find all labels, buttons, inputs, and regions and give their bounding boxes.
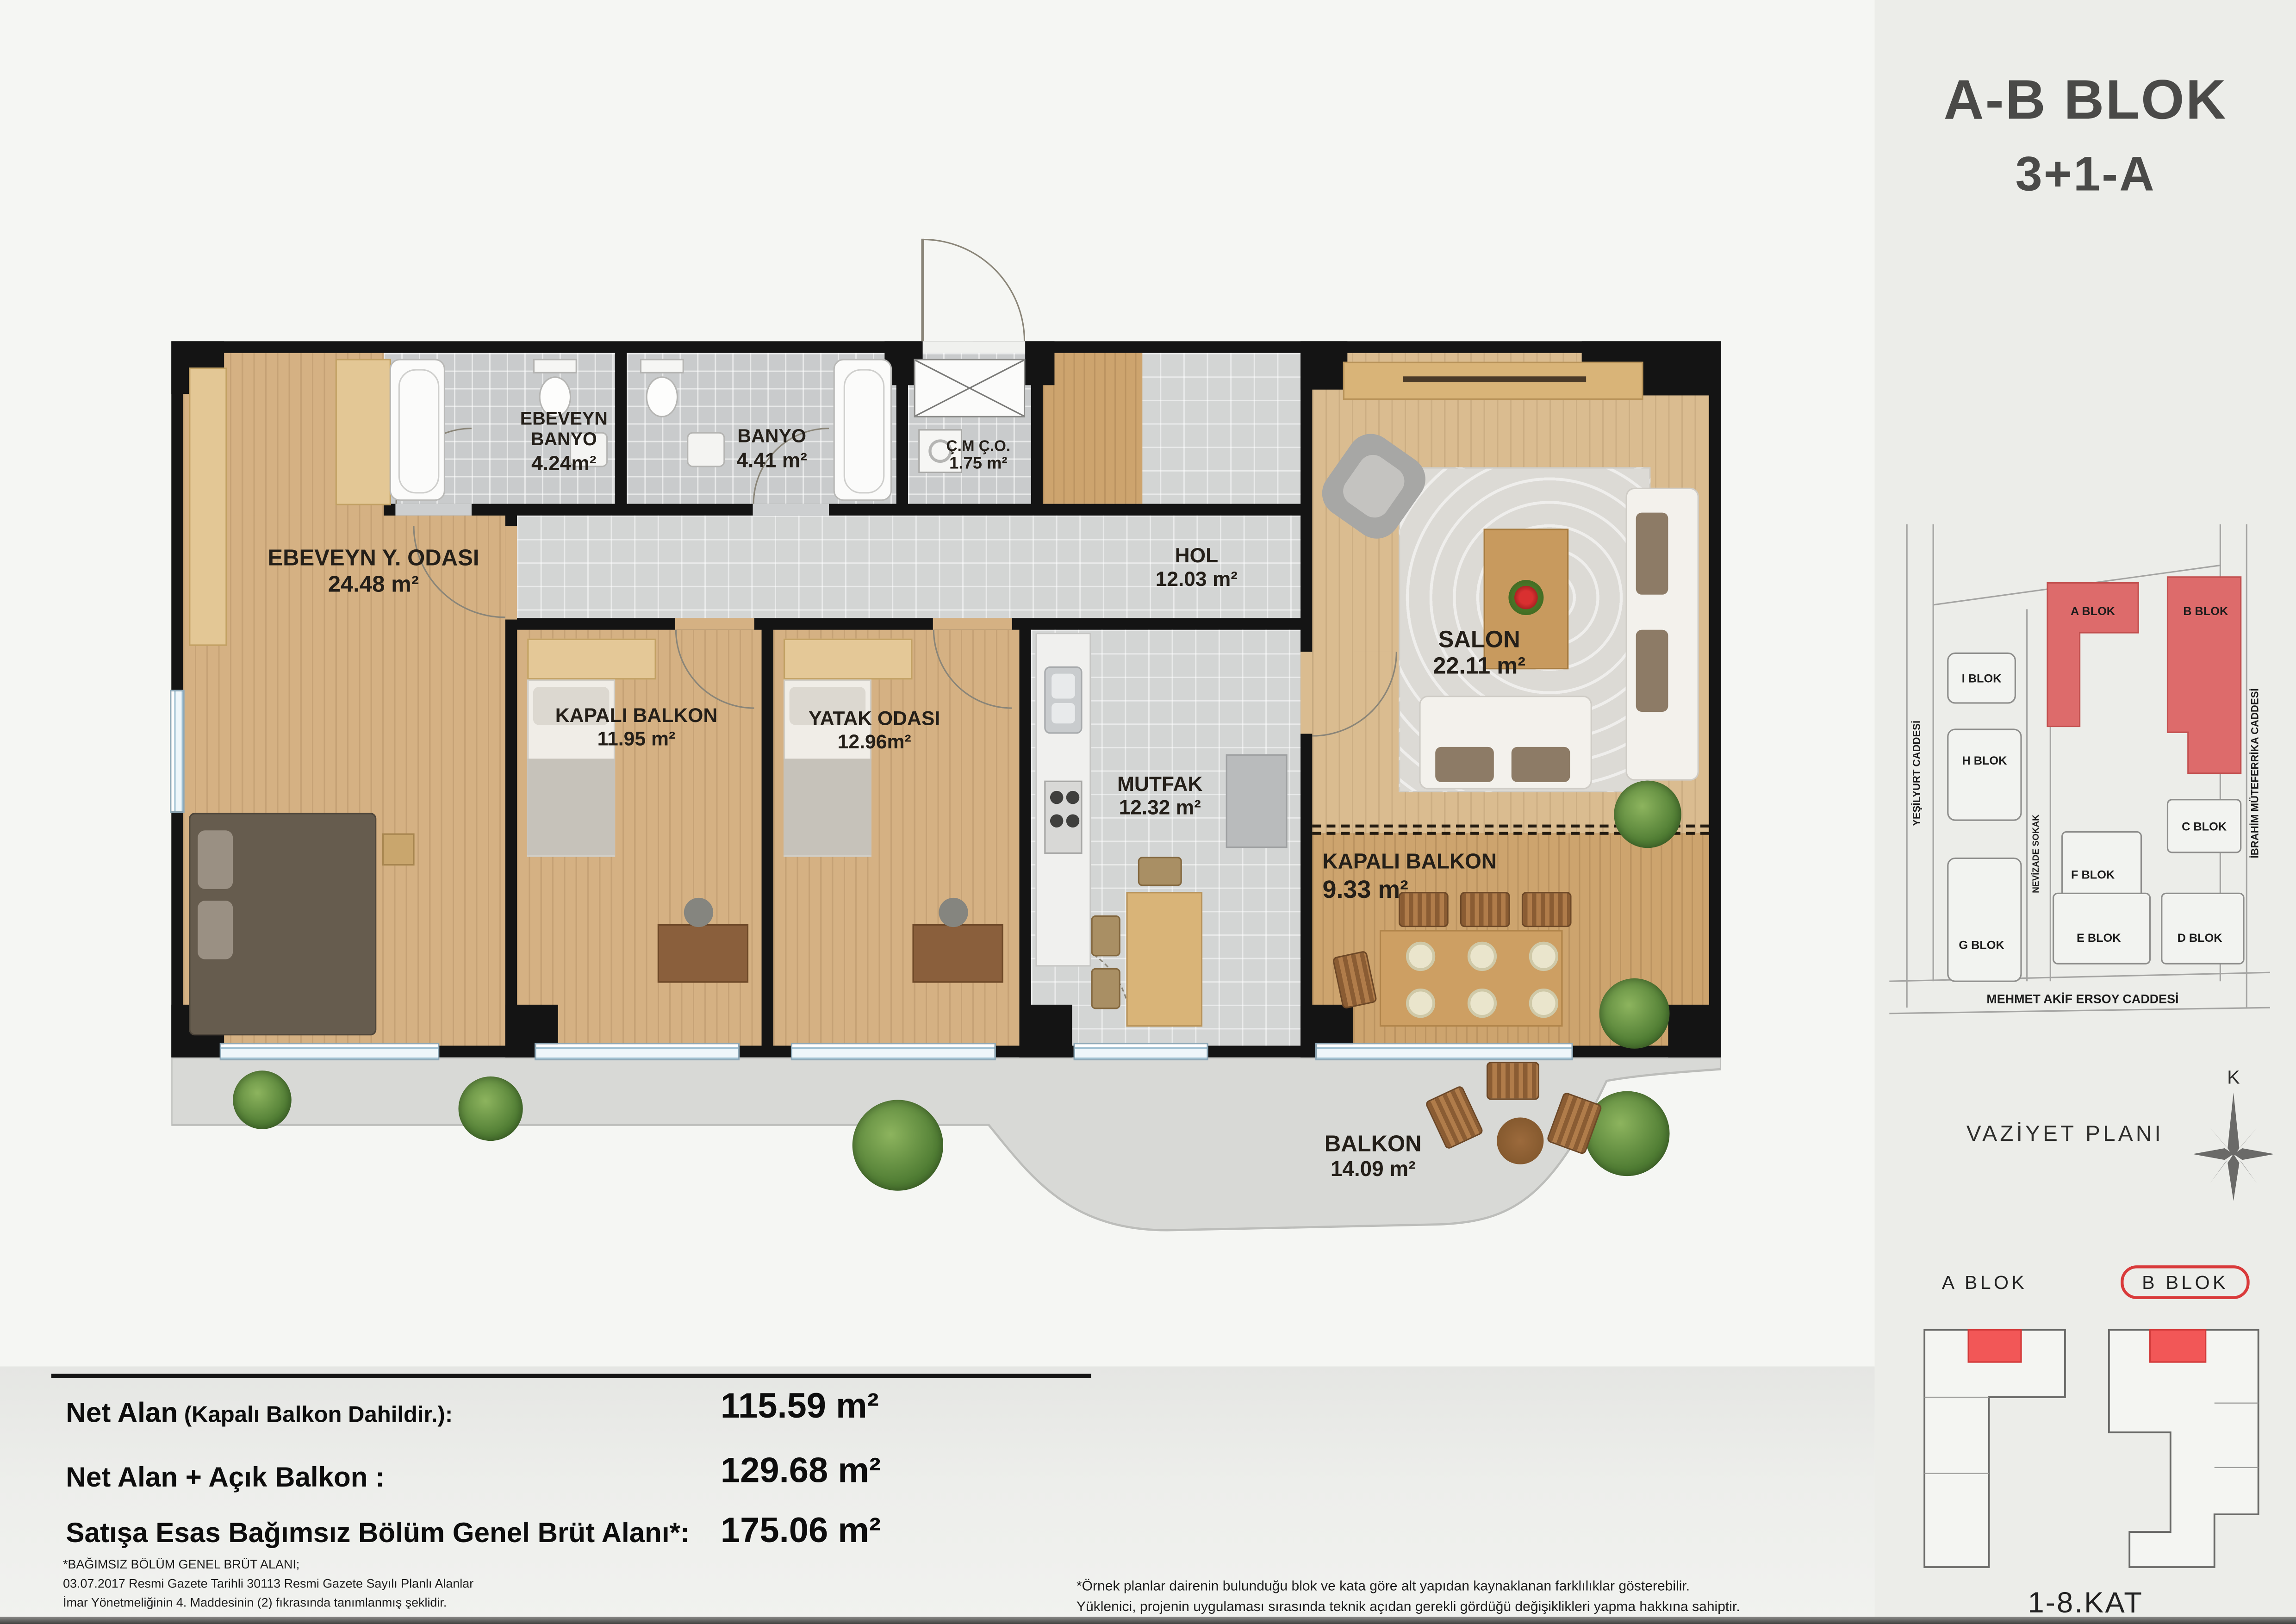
toilet [646, 376, 678, 417]
room-name: EBEVEYN BANYO [498, 409, 630, 451]
wardrobe [189, 367, 227, 646]
key-plan-a-label: A BLOK [1918, 1271, 2050, 1293]
summary-label-text: Net Alan + Açık Balkon : [66, 1463, 385, 1493]
room-area: 11.95 m² [530, 727, 743, 750]
sofa [1626, 488, 1699, 781]
door-gap [395, 504, 472, 516]
room-area: 12.32 m² [1087, 796, 1233, 819]
nightstand [382, 834, 415, 866]
window [220, 1043, 440, 1060]
room-name: YATAK ODASI [772, 707, 977, 730]
stove [1044, 781, 1082, 854]
room-area: 4.24m² [498, 451, 630, 474]
column [1300, 341, 1347, 389]
footnote-line: *Örnek planlar dairenin bulunduğu blok v… [1076, 1577, 1740, 1598]
footnote-left: *BAĞIMSIZ BÖLÜM GENEL BRÜT ALANI; 03.07.… [63, 1556, 473, 1612]
summary-row-label: Net Alan (Kapalı Balkon Dahildir.): [66, 1399, 453, 1431]
room-area: 9.33 m² [1323, 875, 1557, 904]
room-name: EBEVEYN Y. ODASI [234, 546, 512, 572]
site-block-label: I BLOK [1962, 672, 2002, 685]
key-plan [1904, 1315, 2279, 1582]
toilet [640, 359, 684, 373]
room-name: BANYO [706, 426, 838, 448]
bathtub [390, 359, 445, 501]
kitchen-sink [1044, 666, 1082, 734]
key-plan-a-unit-highlight [1968, 1330, 2021, 1362]
room-label-laundry: Ç.M Ç.O. 1.75 m² [909, 438, 1047, 475]
room-label-bathroom: BANYO 4.41 m² [706, 426, 838, 472]
bottom-edge [0, 1617, 2296, 1624]
patio-chair [1487, 1062, 1539, 1100]
summary-label-suffix: (Kapalı Balkon Dahildir.): [178, 1403, 453, 1428]
kitchen-table [1126, 892, 1203, 1027]
summary-band: Net Alan (Kapalı Balkon Dahildir.): 115.… [0, 1366, 1875, 1624]
column [1025, 341, 1054, 385]
patio-table [1497, 1118, 1543, 1164]
wardrobe [336, 359, 391, 505]
footnote-line: İmar Yönetmeliğinin 4. Maddesinin (2) fı… [63, 1593, 473, 1611]
street-label: NEVİZADE SOKAK [2031, 815, 2041, 893]
chair [684, 898, 713, 927]
door-gap [753, 504, 829, 516]
plant [1614, 781, 1681, 848]
desk [658, 924, 748, 983]
door-gap [933, 618, 1012, 629]
street-label: YEŞİLYURT CADDESİ [1911, 721, 1923, 826]
room-name: KAPALI BALKON [1323, 851, 1557, 876]
room-name: MUTFAK [1087, 772, 1233, 796]
site-block-label: G BLOK [1959, 939, 2004, 952]
footnote-right: *Örnek planlar dairenin bulunduğu blok v… [1076, 1577, 1740, 1618]
room-label-closed-balcony-2: KAPALI BALKON 9.33 m² [1323, 851, 1557, 904]
headboard-shelf [784, 639, 912, 680]
plant [852, 1100, 943, 1191]
loveseat [1419, 696, 1592, 790]
site-block-label: C BLOK [2182, 820, 2227, 833]
column [1668, 1005, 1721, 1058]
room-name: HOL [1123, 543, 1269, 567]
summary-row-label: Satışa Esas Bağımsız Bölüm Genel Brüt Al… [66, 1519, 690, 1551]
footnote-line: 03.07.2017 Resmi Gazete Tarihli 30113 Re… [63, 1574, 473, 1593]
site-block-label: F BLOK [2071, 869, 2115, 882]
room-label-kitchen: MUTFAK 12.32 m² [1087, 772, 1233, 819]
street-label: İBRAHİM MÜTEFERRİKA CADDESİ [2249, 688, 2261, 858]
page-title: A-B BLOK [1875, 70, 2296, 133]
site-block-label: B BLOK [2183, 605, 2228, 618]
site-block-label: E BLOK [2077, 932, 2121, 945]
room-label-balcony: BALKON 14.09 m² [1282, 1132, 1465, 1182]
entry-vestibule [1043, 353, 1142, 504]
room-name: Ç.M Ç.O. [909, 438, 1047, 455]
floor-range-label: 1-8.KAT [1875, 1587, 2296, 1621]
summary-label-text: Net Alan [66, 1399, 178, 1429]
room-label-living: SALON 22.11 m² [1391, 628, 1567, 682]
door-gap [675, 618, 754, 629]
summary-row-value: 129.68 m² [721, 1451, 881, 1493]
flower [1514, 586, 1538, 610]
room-label-bedroom: YATAK ODASI 12.96m² [772, 707, 977, 753]
door-gap [1300, 652, 1312, 734]
plant [233, 1070, 292, 1129]
window [791, 1043, 996, 1060]
chair [1138, 857, 1182, 886]
headboard-shelf [527, 639, 656, 680]
entrance-door-gap [923, 341, 1026, 353]
key-plan-b-label: B BLOK [2121, 1265, 2249, 1299]
site-block-label: H BLOK [1962, 754, 2007, 767]
entrance-door-arc [923, 239, 1026, 342]
summary-row-value: 175.06 m² [721, 1512, 881, 1553]
room-name: SALON [1391, 628, 1567, 655]
room-area: 24.48 m² [234, 572, 512, 598]
cabinet [1226, 754, 1288, 848]
summary-label-text: Satışa Esas Bağımsız Bölüm Genel Brüt Al… [66, 1519, 690, 1549]
site-block-label: A BLOK [2071, 605, 2116, 618]
room-label-closed-balcony-1: KAPALI BALKON 11.95 m² [530, 704, 743, 750]
room-area: 1.75 m² [909, 455, 1047, 475]
room-area: 12.96m² [772, 730, 977, 753]
page: EBEVEYN BANYO 4.24m² BANYO 4.41 m² Ç.M Ç… [0, 0, 2296, 1624]
window [1074, 1043, 1208, 1060]
compass-north-label: K [2227, 1067, 2240, 1088]
room-name: KAPALI BALKON [530, 704, 743, 727]
shaft [914, 359, 1026, 417]
desk [912, 924, 1003, 983]
blanket [784, 759, 871, 855]
room-area: 12.03 m² [1123, 567, 1269, 591]
floor-plan: EBEVEYN BANYO 4.24m² BANYO 4.41 m² Ç.M Ç… [171, 341, 1721, 1238]
room-label-master-bedroom: EBEVEYN Y. ODASI 24.48 m² [234, 546, 512, 598]
room-label-hall: HOL 12.03 m² [1123, 543, 1269, 591]
toilet [533, 359, 577, 373]
summary-row-label: Net Alan + Açık Balkon : [66, 1463, 385, 1495]
room-label-ensuite-bath: EBEVEYN BANYO 4.24m² [498, 409, 630, 474]
divider [51, 1374, 1091, 1377]
chair [939, 898, 968, 927]
chair [1091, 968, 1120, 1009]
plant [1599, 978, 1670, 1049]
window [170, 690, 185, 813]
page-subtitle: 3+1-A [1875, 146, 2296, 202]
pillow [198, 830, 233, 889]
room-area: 22.11 m² [1391, 655, 1567, 682]
room-name: BALKON [1282, 1132, 1465, 1158]
tv-unit [1343, 362, 1643, 400]
bathtub [834, 359, 892, 501]
summary-row-value: 115.59 m² [721, 1387, 879, 1428]
site-plan: I BLOK H BLOK G BLOK A BLOK B BLOK C BLO… [1889, 524, 2270, 1030]
shaft-x-icon [915, 360, 1024, 416]
pillow [198, 901, 233, 959]
entrance-door-leaf [921, 239, 924, 342]
site-block-a-highlight [2047, 583, 2138, 726]
room-area: 4.41 m² [706, 448, 838, 472]
sidebar: A-B BLOK 3+1-A [1875, 0, 2296, 1624]
key-plan-b-unit-highlight [2150, 1330, 2205, 1362]
window [1315, 1043, 1573, 1060]
footnote-line: Yüklenici, projenin uygulaması sırasında… [1076, 1598, 1740, 1618]
chair [1091, 915, 1120, 957]
street-label: MEHMET AKİF ERSOY CADDESİ [1986, 992, 2178, 1006]
footnote-line: *BAĞIMSIZ BÖLÜM GENEL BRÜT ALANI; [63, 1556, 473, 1574]
site-block-label: D BLOK [2178, 932, 2223, 945]
plant [458, 1076, 523, 1141]
compass-icon: K [2190, 1063, 2277, 1202]
window [535, 1043, 740, 1060]
room-area: 14.09 m² [1282, 1158, 1465, 1183]
blanket [527, 759, 615, 855]
